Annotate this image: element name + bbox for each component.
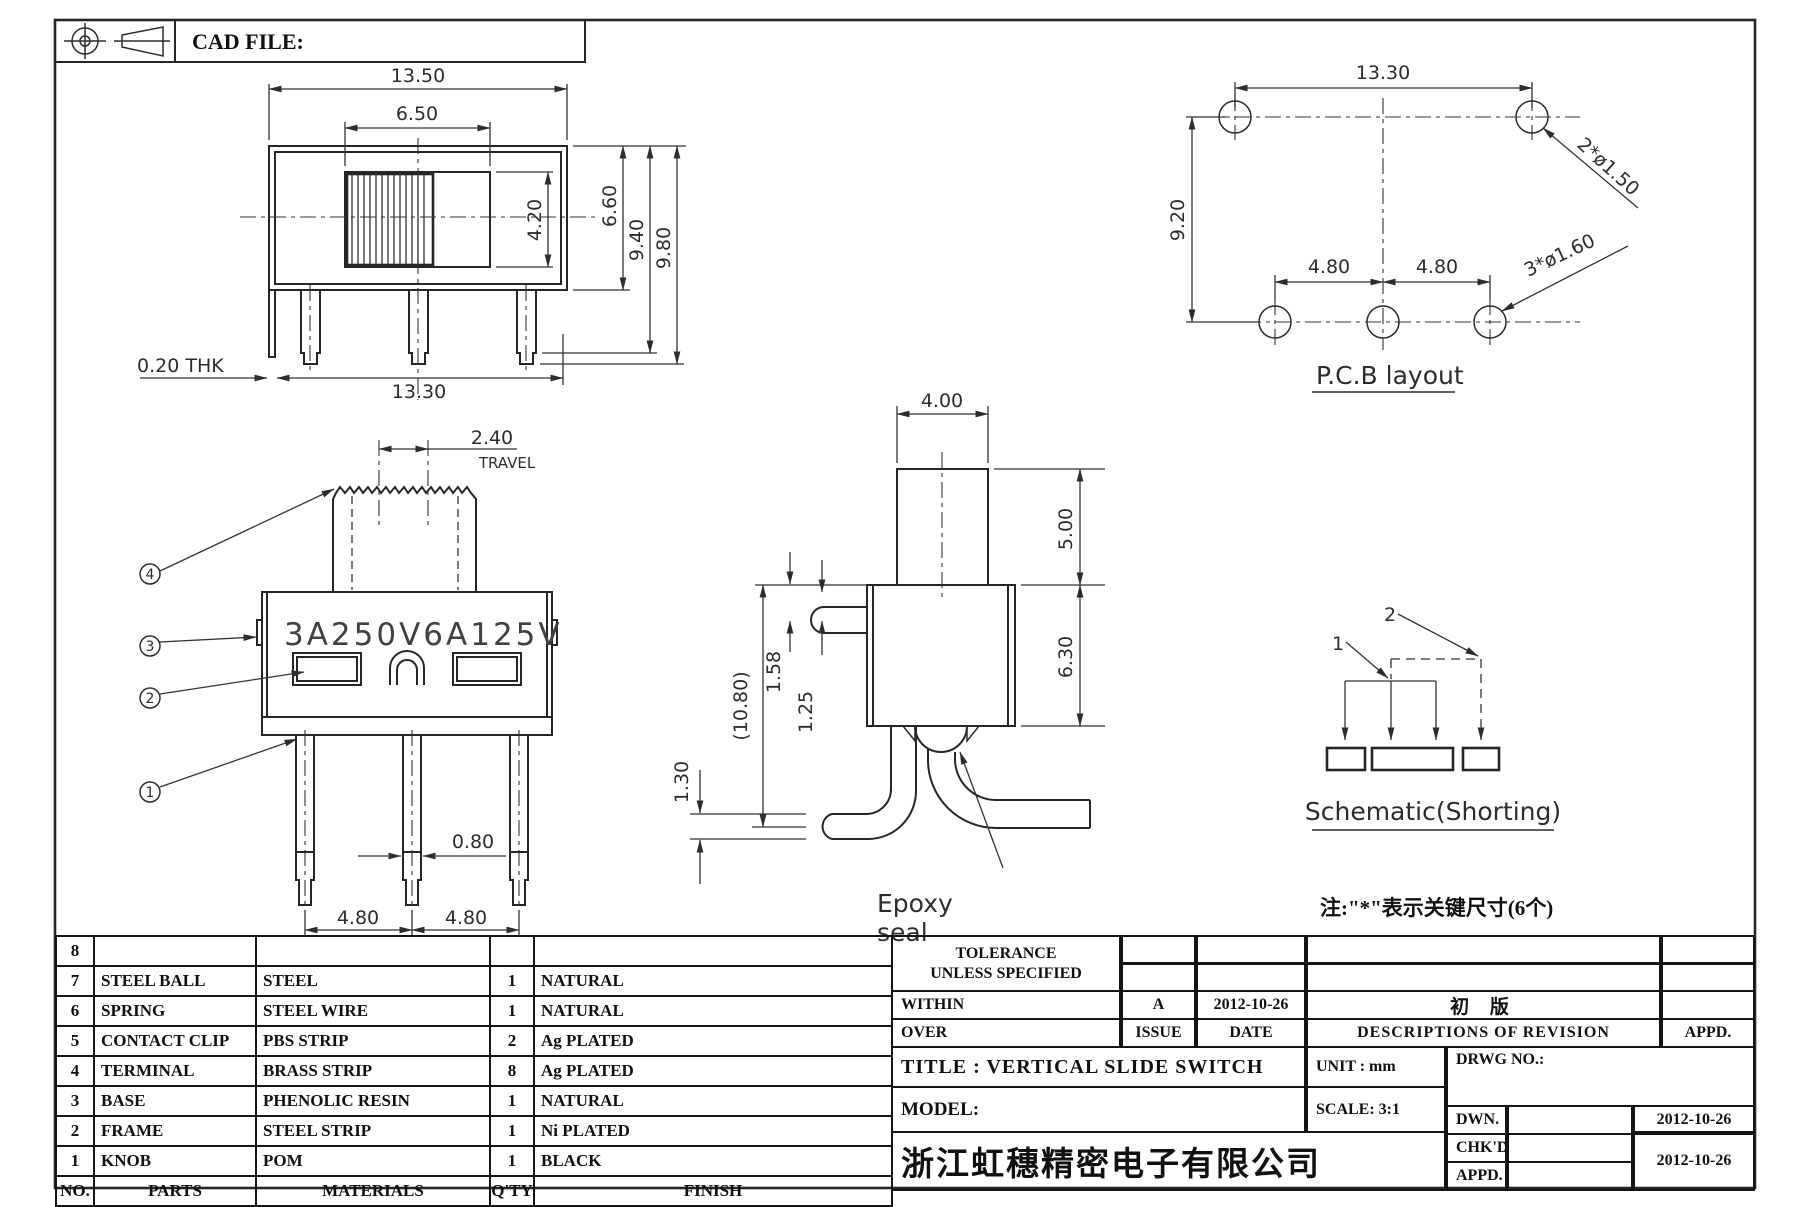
part-qty: 8 bbox=[490, 1056, 534, 1086]
part-finish: BLACK bbox=[534, 1146, 892, 1176]
col-header-no: NO. bbox=[56, 1176, 94, 1206]
col-header-qty: Q'TY bbox=[490, 1176, 534, 1206]
revision-empty-cell bbox=[1121, 935, 1196, 964]
part-no: 3 bbox=[56, 1086, 94, 1116]
issue-column-header: ISSUE bbox=[1121, 1018, 1196, 1048]
part-qty: 1 bbox=[490, 1116, 534, 1146]
col-header-parts: PARTS bbox=[94, 1176, 256, 1206]
part-no: 5 bbox=[56, 1026, 94, 1056]
callout-2: 2 bbox=[146, 691, 155, 707]
part-no: 7 bbox=[56, 966, 94, 996]
revision-empty-cell bbox=[1306, 963, 1661, 992]
pcb-layout: 13.30 9.20 4.80 4.80 2*ø1.50 3*ø1.60 P.C… bbox=[1167, 62, 1644, 392]
revision-issue-value: A bbox=[1121, 990, 1196, 1020]
dim-front-thickness: 0.20 THK bbox=[137, 355, 224, 377]
dim-side-body-height: 6.30 bbox=[1055, 636, 1077, 678]
schematic-title: Schematic(Shorting) bbox=[1305, 797, 1561, 826]
drawing-sheet: CAD FILE: bbox=[0, 0, 1811, 1207]
part-name: KNOB bbox=[94, 1146, 256, 1176]
revision-empty-cell bbox=[1196, 935, 1306, 964]
schematic-pin1-label: 1 bbox=[1332, 633, 1344, 655]
col-header-finish: FINISH bbox=[534, 1176, 892, 1206]
appd-column-header: APPD. bbox=[1661, 1018, 1755, 1048]
dwn-signature-cell bbox=[1507, 1105, 1633, 1135]
callout-1: 1 bbox=[146, 785, 155, 801]
part-no: 6 bbox=[56, 996, 94, 1026]
callout-3: 3 bbox=[146, 639, 155, 655]
tolerance-cell: TOLERANCE UNLESS SPECIFIED bbox=[891, 935, 1121, 992]
revision-empty-cell bbox=[1121, 963, 1196, 992]
part-finish bbox=[534, 936, 892, 966]
side-view: 4.00 5.00 6.30 1.58 1.25 (10.80) 1.30 Ep… bbox=[671, 390, 1105, 947]
part-material: POM bbox=[256, 1146, 490, 1176]
parts-table: 8 7STEEL BALLSTEEL1NATURAL 6SPRINGSTEEL … bbox=[55, 935, 893, 1207]
chkd-appd-date: 2012-10-26 bbox=[1633, 1131, 1755, 1191]
revision-empty-cell bbox=[1196, 963, 1306, 992]
date-column-header: DATE bbox=[1196, 1018, 1306, 1048]
drawing-title: TITLE : VERTICAL SLIDE SWITCH bbox=[891, 1046, 1306, 1088]
body-marking-text: 3A250V6A125V bbox=[284, 617, 563, 653]
unit-cell: UNIT : mm bbox=[1306, 1046, 1446, 1088]
part-name bbox=[94, 936, 256, 966]
revision-description-value: 初 版 bbox=[1306, 990, 1661, 1020]
dim-side-knob-width: 4.00 bbox=[921, 390, 963, 412]
dim-pcb-pitch-left: 4.80 bbox=[1308, 256, 1350, 278]
part-name: STEEL BALL bbox=[94, 966, 256, 996]
appd-signature-cell bbox=[1507, 1161, 1633, 1191]
dim-pin-width: 0.80 bbox=[452, 831, 494, 853]
title-block: TOLERANCE UNLESS SPECIFIED WITHIN A 2012… bbox=[891, 935, 1755, 1191]
part-material: STEEL bbox=[256, 966, 490, 996]
dim-side-knob-height: 5.00 bbox=[1055, 508, 1077, 550]
dim-front-bottom-width: 13.30 bbox=[392, 381, 446, 403]
dim-pcb-pitch-right: 4.80 bbox=[1416, 256, 1458, 278]
part-material: PHENOLIC RESIN bbox=[256, 1086, 490, 1116]
label-top-holes: 2*ø1.50 bbox=[1573, 133, 1644, 200]
table-row: 7STEEL BALLSTEEL1NATURAL bbox=[56, 966, 892, 996]
drwg-no-cell: DRWG NO.: bbox=[1446, 1046, 1755, 1107]
table-header-row: NO. PARTS MATERIALS Q'TY FINISH bbox=[56, 1176, 892, 1206]
revision-empty-cell bbox=[1306, 935, 1661, 964]
dim-front-knob-height: 4.20 bbox=[524, 199, 546, 241]
appd-label: APPD. bbox=[1446, 1161, 1507, 1191]
dim-pcb-width: 13.30 bbox=[1356, 62, 1410, 84]
part-no: 2 bbox=[56, 1116, 94, 1146]
part-finish: NATURAL bbox=[534, 996, 892, 1026]
tolerance-line1: TOLERANCE bbox=[955, 944, 1056, 964]
revision-empty-cell bbox=[1661, 935, 1755, 964]
dim-travel: 2.40 bbox=[471, 427, 513, 449]
table-row: 4TERMINALBRASS STRIP8Ag PLATED bbox=[56, 1056, 892, 1086]
model-cell: MODEL: bbox=[891, 1086, 1306, 1133]
table-row: 5CONTACT CLIPPBS STRIP2Ag PLATED bbox=[56, 1026, 892, 1056]
dim-side-pin-thickness: 1.30 bbox=[671, 761, 693, 803]
callout-4: 4 bbox=[146, 567, 155, 583]
part-finish: Ag PLATED bbox=[534, 1056, 892, 1086]
dim-front-pin-step-height: 9.40 bbox=[626, 219, 648, 261]
dim-pitch-left: 4.80 bbox=[337, 907, 379, 929]
part-material: PBS STRIP bbox=[256, 1026, 490, 1056]
part-no: 4 bbox=[56, 1056, 94, 1086]
part-name: CONTACT CLIP bbox=[94, 1026, 256, 1056]
part-finish: Ni PLATED bbox=[534, 1116, 892, 1146]
part-qty: 1 bbox=[490, 1086, 534, 1116]
table-row: 3BASEPHENOLIC RESIN1NATURAL bbox=[56, 1086, 892, 1116]
company-name: 浙江虹穗精密电子有限公司 bbox=[891, 1131, 1446, 1191]
part-name: BASE bbox=[94, 1086, 256, 1116]
tolerance-line2: UNLESS SPECIFIED bbox=[930, 964, 1082, 984]
dim-side-pin-offset-1: 1.58 bbox=[763, 651, 785, 693]
table-row: 1KNOBPOM1BLACK bbox=[56, 1146, 892, 1176]
part-finish: NATURAL bbox=[534, 1086, 892, 1116]
label-bottom-holes: 3*ø1.60 bbox=[1521, 230, 1599, 282]
part-name: FRAME bbox=[94, 1116, 256, 1146]
chkd-signature-cell bbox=[1507, 1133, 1633, 1163]
part-material bbox=[256, 936, 490, 966]
part-no: 1 bbox=[56, 1146, 94, 1176]
chkd-label: CHK'D bbox=[1446, 1133, 1507, 1163]
part-material: STEEL STRIP bbox=[256, 1116, 490, 1146]
part-finish: Ag PLATED bbox=[534, 1026, 892, 1056]
part-qty: 1 bbox=[490, 1146, 534, 1176]
part-qty bbox=[490, 936, 534, 966]
part-name: TERMINAL bbox=[94, 1056, 256, 1086]
part-qty: 2 bbox=[490, 1026, 534, 1056]
tolerance-over-label: OVER bbox=[891, 1018, 1121, 1048]
table-row: 2FRAMESTEEL STRIP1Ni PLATED bbox=[56, 1116, 892, 1146]
part-no: 8 bbox=[56, 936, 94, 966]
part-qty: 1 bbox=[490, 966, 534, 996]
label-travel: TRAVEL bbox=[478, 454, 536, 472]
revision-date-value: 2012-10-26 bbox=[1196, 990, 1306, 1020]
epoxy-seal-label-line1: Epoxy bbox=[877, 889, 953, 918]
part-finish: NATURAL bbox=[534, 966, 892, 996]
dim-pitch-right: 4.80 bbox=[445, 907, 487, 929]
part-material: STEEL WIRE bbox=[256, 996, 490, 1026]
dim-front-body-height: 6.60 bbox=[599, 185, 621, 227]
dim-front-total-width: 13.50 bbox=[391, 65, 445, 87]
dim-front-window-width: 6.50 bbox=[396, 103, 438, 125]
scale-cell: SCALE: 3:1 bbox=[1306, 1086, 1446, 1133]
schematic-pin2-label: 2 bbox=[1384, 604, 1396, 626]
table-row: 6SPRINGSTEEL WIRE1NATURAL bbox=[56, 996, 892, 1026]
dim-side-total-height: (10.80) bbox=[730, 671, 752, 740]
pcb-layout-title: P.C.B layout bbox=[1316, 361, 1464, 390]
dim-pcb-height: 9.20 bbox=[1167, 199, 1189, 241]
revision-appd-value bbox=[1661, 990, 1755, 1020]
part-name: SPRING bbox=[94, 996, 256, 1026]
front-view: 13.50 6.50 4.20 6.60 9.40 9.80 0.20 THK … bbox=[137, 65, 686, 403]
revision-empty-cell bbox=[1661, 963, 1755, 992]
col-header-materials: MATERIALS bbox=[256, 1176, 490, 1206]
dwn-label: DWN. bbox=[1446, 1105, 1507, 1135]
key-dimension-note: 注:"*"表示关键尺寸(6个) bbox=[1320, 892, 1553, 922]
schematic-view: 1 2 Schematic(Shorting) bbox=[1305, 604, 1561, 830]
cad-file-label: CAD FILE: bbox=[192, 29, 304, 54]
marking-view: 4 3 2 1 3A250V6A125V 2.40 TRAVEL 0.80 4.… bbox=[140, 427, 563, 936]
part-material: BRASS STRIP bbox=[256, 1056, 490, 1086]
table-row: 8 bbox=[56, 936, 892, 966]
dim-front-pin-height: 9.80 bbox=[653, 227, 675, 269]
dim-side-pin-offset-2: 1.25 bbox=[795, 691, 817, 733]
descriptions-column-header: DESCRIPTIONS OF REVISION bbox=[1306, 1018, 1661, 1048]
tolerance-within-label: WITHIN bbox=[891, 990, 1121, 1020]
part-qty: 1 bbox=[490, 996, 534, 1026]
projection-symbol-icon bbox=[64, 23, 170, 59]
